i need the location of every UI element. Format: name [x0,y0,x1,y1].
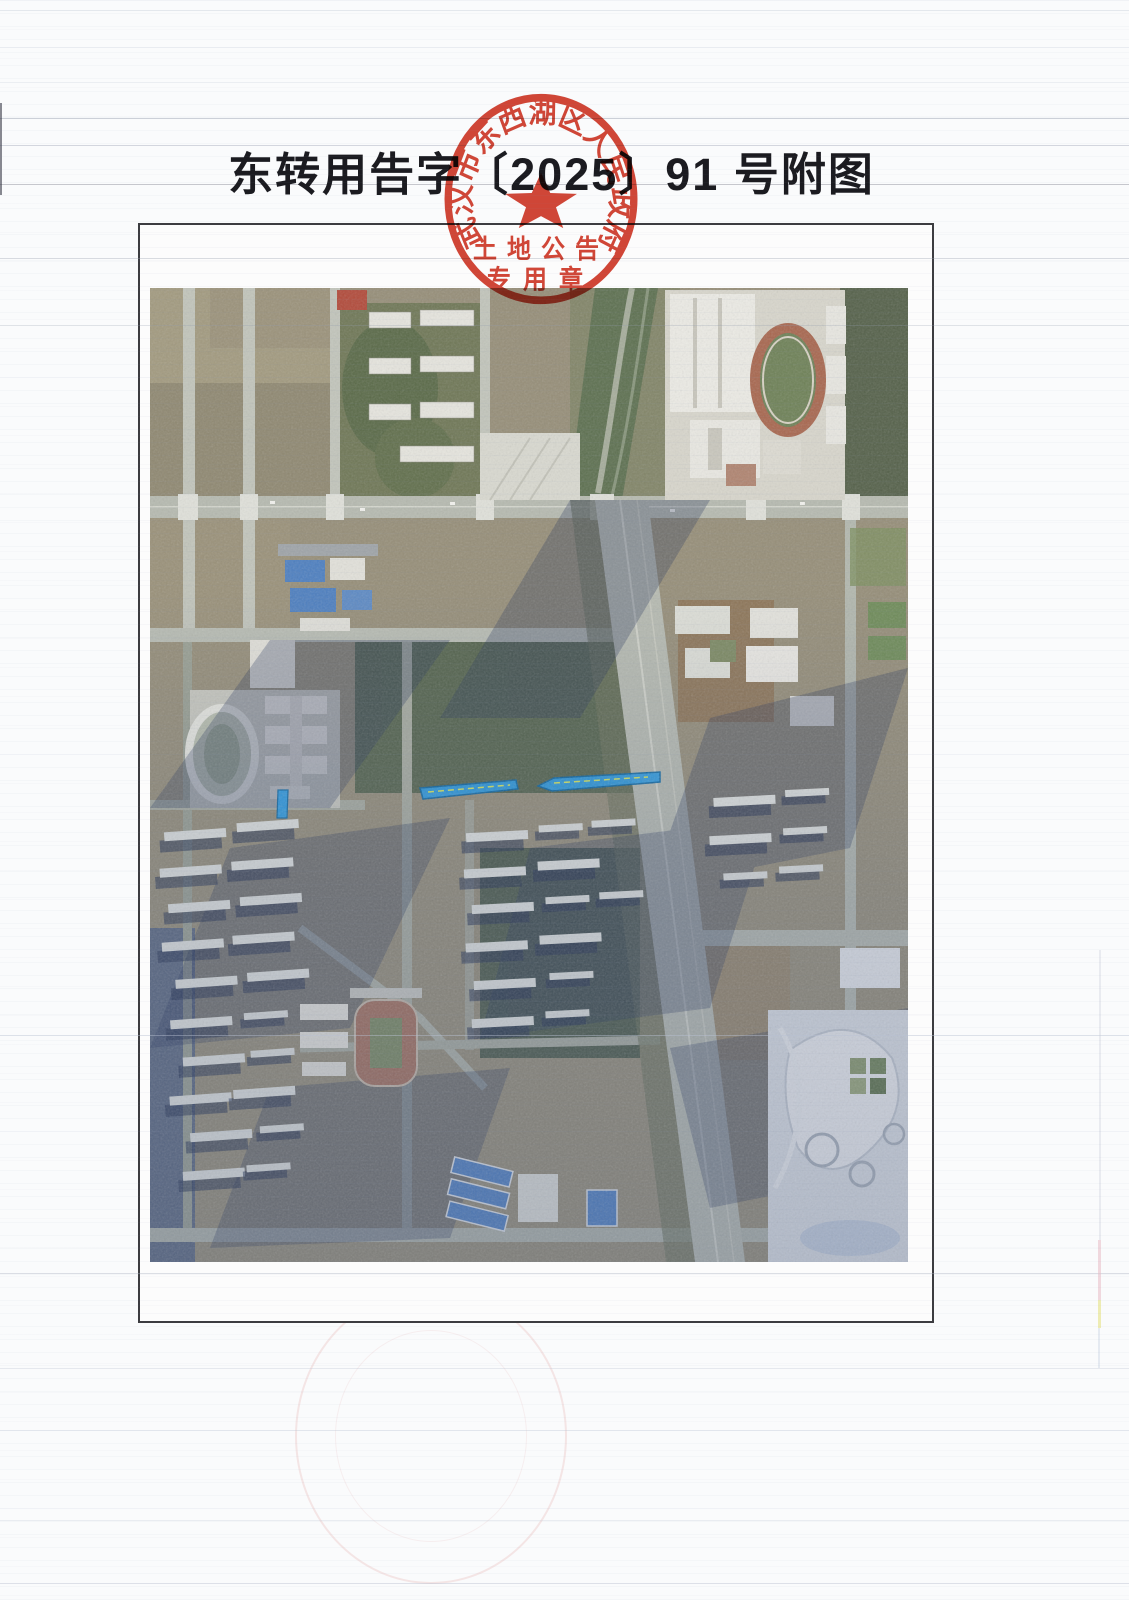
scanned-document-page: 东转用告字〔2025〕91 号附图 [0,0,1129,1600]
seal-star-icon [505,173,577,228]
scan-line [0,1368,1129,1369]
ghost-stamp-inner [335,1330,527,1542]
ghost-stamp-outline [295,1288,567,1584]
seal-row1: 土地公告 [473,235,609,264]
scan-artifact [1099,950,1101,1240]
scan-line [0,1583,1129,1584]
seal-row2: 专用章 [487,264,595,294]
scan-artifact [1098,1328,1100,1368]
scan-line [0,1430,1129,1431]
satellite-map-svg [150,288,908,1262]
scan-line [0,47,1129,48]
scan-line [0,82,1129,83]
government-seal: 武汉市东西湖区人民政府 土地公告 专用章 [441,90,641,308]
scan-line [0,1520,1129,1521]
scan-artifact [1098,1300,1101,1328]
scan-artifact [1098,1240,1101,1300]
satellite-map [150,288,908,1262]
scan-line [0,10,1129,11]
